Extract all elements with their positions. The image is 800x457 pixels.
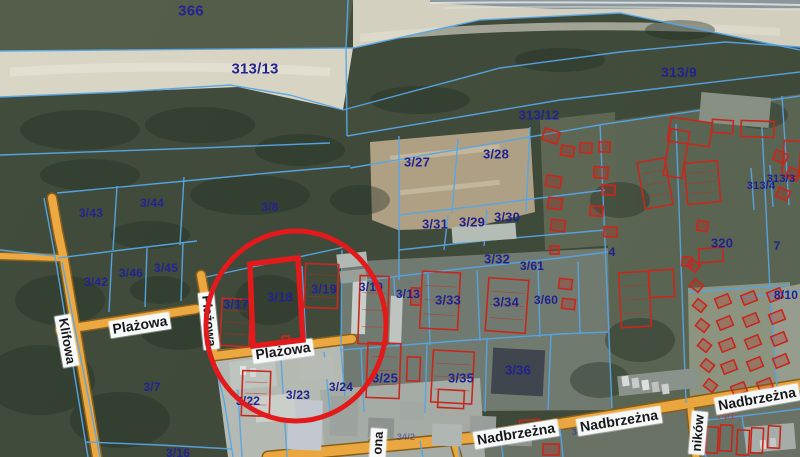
building-outline (594, 167, 609, 179)
satellite-base-layer (0, 0, 800, 457)
building-outline (562, 298, 576, 309)
building-outline (547, 197, 562, 209)
roof (250, 368, 256, 377)
map-viewport[interactable]: 366313/13313/9313/123/273/283/83/443/433… (0, 0, 800, 457)
building-outline (602, 185, 616, 196)
roof (661, 384, 669, 395)
roof (299, 357, 335, 382)
building-outline (580, 143, 593, 154)
roof (432, 423, 463, 446)
building-outline (550, 246, 559, 254)
roof (770, 438, 777, 447)
building-outline (559, 278, 573, 289)
building-outline (282, 336, 289, 343)
dune-forest-area (0, 0, 353, 51)
building-outline (411, 288, 422, 305)
building-outline (590, 206, 604, 217)
roof (651, 382, 659, 393)
building-outline (604, 227, 618, 238)
roof (368, 418, 395, 439)
roof (631, 378, 639, 389)
roof (389, 296, 403, 344)
building-outline (696, 220, 708, 231)
roof (470, 416, 497, 435)
building-outline (550, 219, 565, 231)
roof (621, 376, 629, 387)
building-outline (543, 444, 559, 455)
building-outline (560, 145, 575, 157)
roof (400, 402, 425, 421)
roof (254, 393, 296, 422)
building-outline (599, 142, 610, 152)
building-outline (545, 175, 561, 188)
sandy-field (370, 128, 535, 230)
roof (641, 380, 649, 391)
roof (329, 396, 358, 437)
roof (491, 348, 545, 397)
beach-highlight (10, 67, 330, 72)
